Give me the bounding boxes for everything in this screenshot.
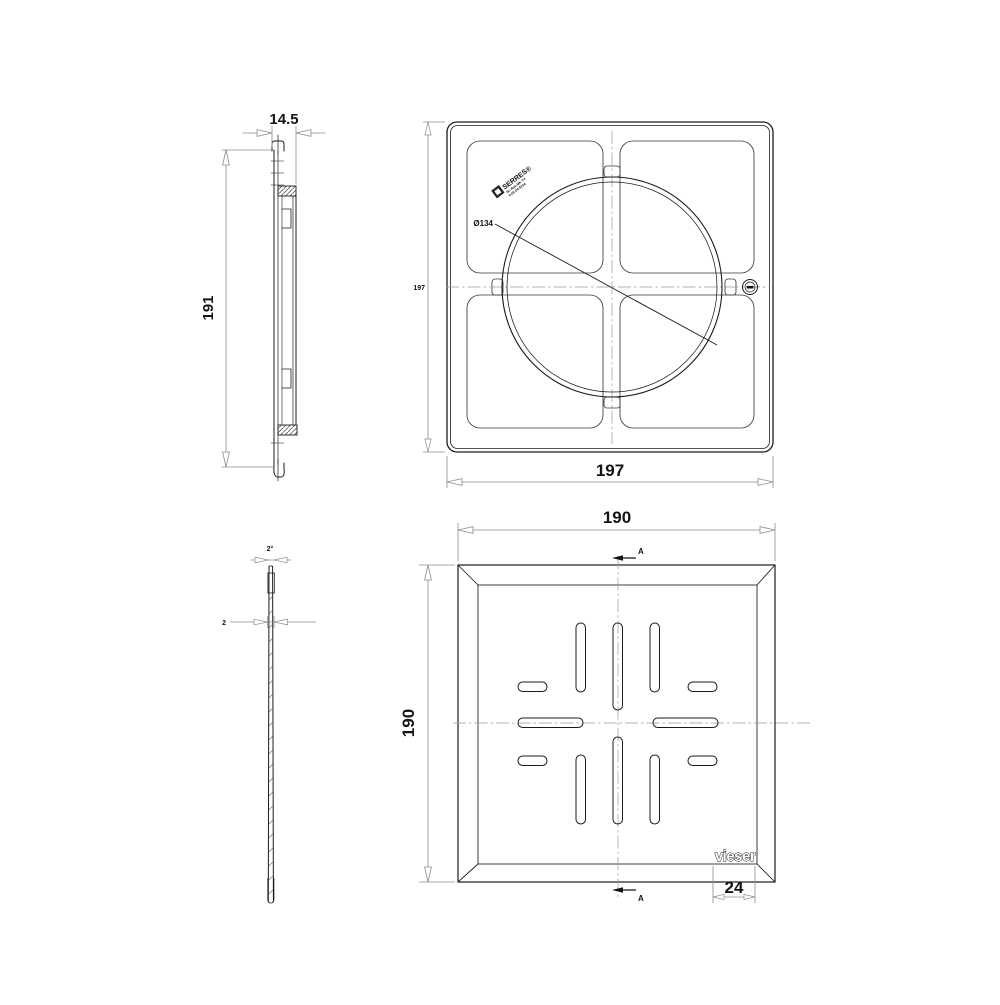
locking-screw <box>743 280 758 295</box>
dim-frame-plan-width: 197 <box>447 456 773 488</box>
section-mark-top: A <box>612 547 644 561</box>
manufacturer-stamp: SERRES® Nr. Rak-MK TV 6-05-04-5234 <box>492 163 539 204</box>
dim-label-frame-plan-width: 197 <box>596 461 624 480</box>
grate-plan-view: A A 190 190 vieser <box>399 508 812 903</box>
dim-logo-width: 24 <box>713 866 755 903</box>
dim-label-circle-diameter: Ø134 <box>473 219 493 228</box>
section-hatch-bottom-flange <box>278 425 297 435</box>
dim-grate-height: 190 <box>399 565 455 882</box>
plate-hatch-ticks <box>269 596 273 894</box>
section-label-bottom: A <box>638 894 644 903</box>
dim-grate-width: 190 <box>458 508 775 561</box>
dim-frame-plan-height: 197 <box>413 122 445 452</box>
dim-grate-draft-angle: 2° <box>251 545 291 563</box>
dim-label-grate-thickness: 2 <box>222 620 226 627</box>
grate-bevel-lines <box>458 565 775 882</box>
section-mark-bottom: A <box>612 887 644 903</box>
dim-label-frame-thickness: 14.5 <box>269 111 298 128</box>
section-label-top: A <box>638 547 644 556</box>
dim-label-draft-angle: 2° <box>267 545 274 553</box>
grate-side-section-view: 2° 2 <box>222 545 316 903</box>
dim-frame-height: 191 <box>200 150 273 467</box>
vieser-logo: vieser <box>715 848 756 865</box>
drawing-canvas: 14.5 191 <box>0 0 1000 1000</box>
dim-label-grate-width: 190 <box>603 508 631 527</box>
dim-label-frame-plan-height: 197 <box>413 285 425 292</box>
frame-side-section-view: 14.5 191 <box>200 111 325 481</box>
grate-centerlines <box>453 556 812 898</box>
frame-plan-view: Ø134 SERRES® Nr. Rak-MK TV 6-05-04-5234 … <box>413 122 773 488</box>
dim-label-logo-width: 24 <box>725 878 744 897</box>
dim-label-frame-height: 191 <box>200 295 217 320</box>
section-hatch-top-flange <box>278 186 296 196</box>
technical-drawing-page: 14.5 191 <box>0 0 1000 1000</box>
diameter-line <box>495 224 717 345</box>
dim-label-grate-height: 190 <box>399 709 418 737</box>
